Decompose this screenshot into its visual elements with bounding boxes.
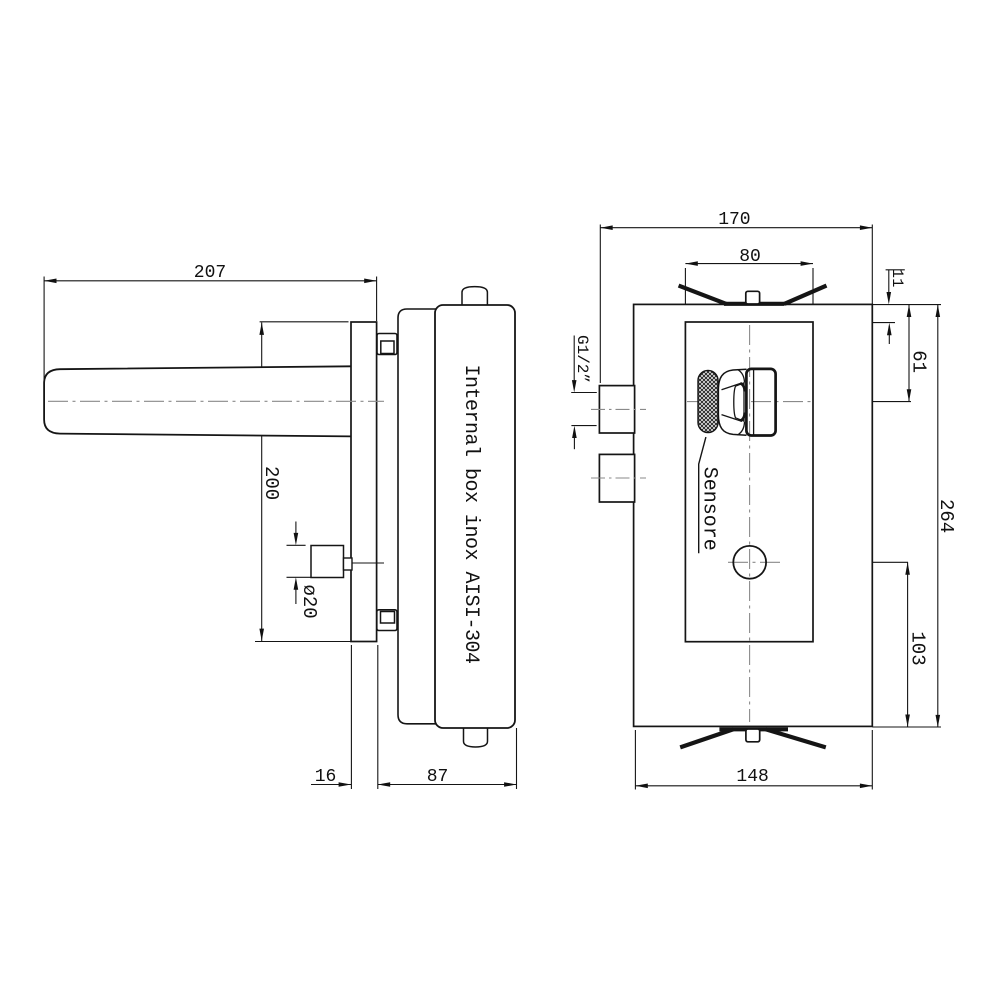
svg-text:87: 87	[427, 767, 449, 787]
svg-text:61: 61	[907, 350, 929, 373]
svg-text:170: 170	[718, 210, 750, 230]
svg-text:200: 200	[260, 466, 282, 500]
svg-text:Sensore: Sensore	[698, 467, 721, 551]
svg-text:148: 148	[736, 767, 768, 787]
svg-text:ø20: ø20	[298, 585, 320, 619]
svg-text:103: 103	[907, 631, 929, 665]
svg-text:207: 207	[194, 263, 226, 283]
svg-text:Internal box inox AISI-304: Internal box inox AISI-304	[459, 365, 482, 664]
svg-text:11: 11	[888, 269, 906, 288]
svg-text:264: 264	[935, 499, 957, 533]
svg-text:G1/2”: G1/2”	[573, 335, 591, 383]
svg-text:80: 80	[739, 247, 761, 267]
svg-text:16: 16	[315, 767, 337, 787]
